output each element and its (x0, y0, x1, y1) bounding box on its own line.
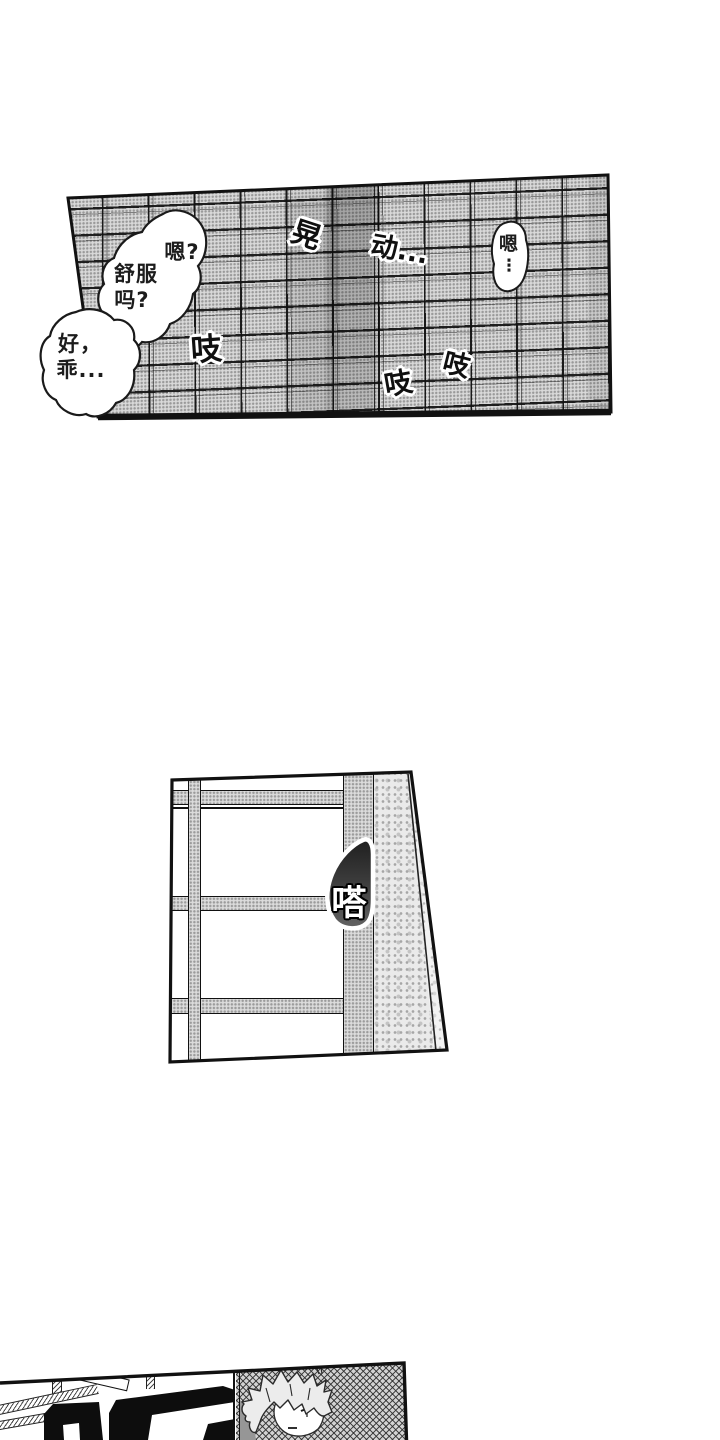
bubble-right-char: 嗯 (495, 234, 523, 256)
speech-bubble-right: 嗯 ⋮ (486, 218, 534, 298)
speech-bubble-left: 好， 乖... (38, 304, 142, 422)
bubble-left-line1: 好， (54, 332, 106, 356)
sfx-zhi-2: 吱 (374, 359, 422, 406)
manga-page: { "page": { "type": "manga-page", "color… (0, 0, 720, 1440)
bubble-left-line2: 乖... (50, 358, 112, 382)
bubble-right-ellipsis: ⋮ (498, 262, 520, 271)
panel-mid: 嗒 (163, 763, 455, 1065)
panel-mid-border (163, 763, 455, 1065)
bubble-main-line1: 嗯? (156, 240, 208, 264)
panel-bottom (0, 1358, 418, 1440)
bubble-main-line2: 舒服 (108, 262, 164, 286)
panel-bottom-border (0, 1358, 418, 1440)
